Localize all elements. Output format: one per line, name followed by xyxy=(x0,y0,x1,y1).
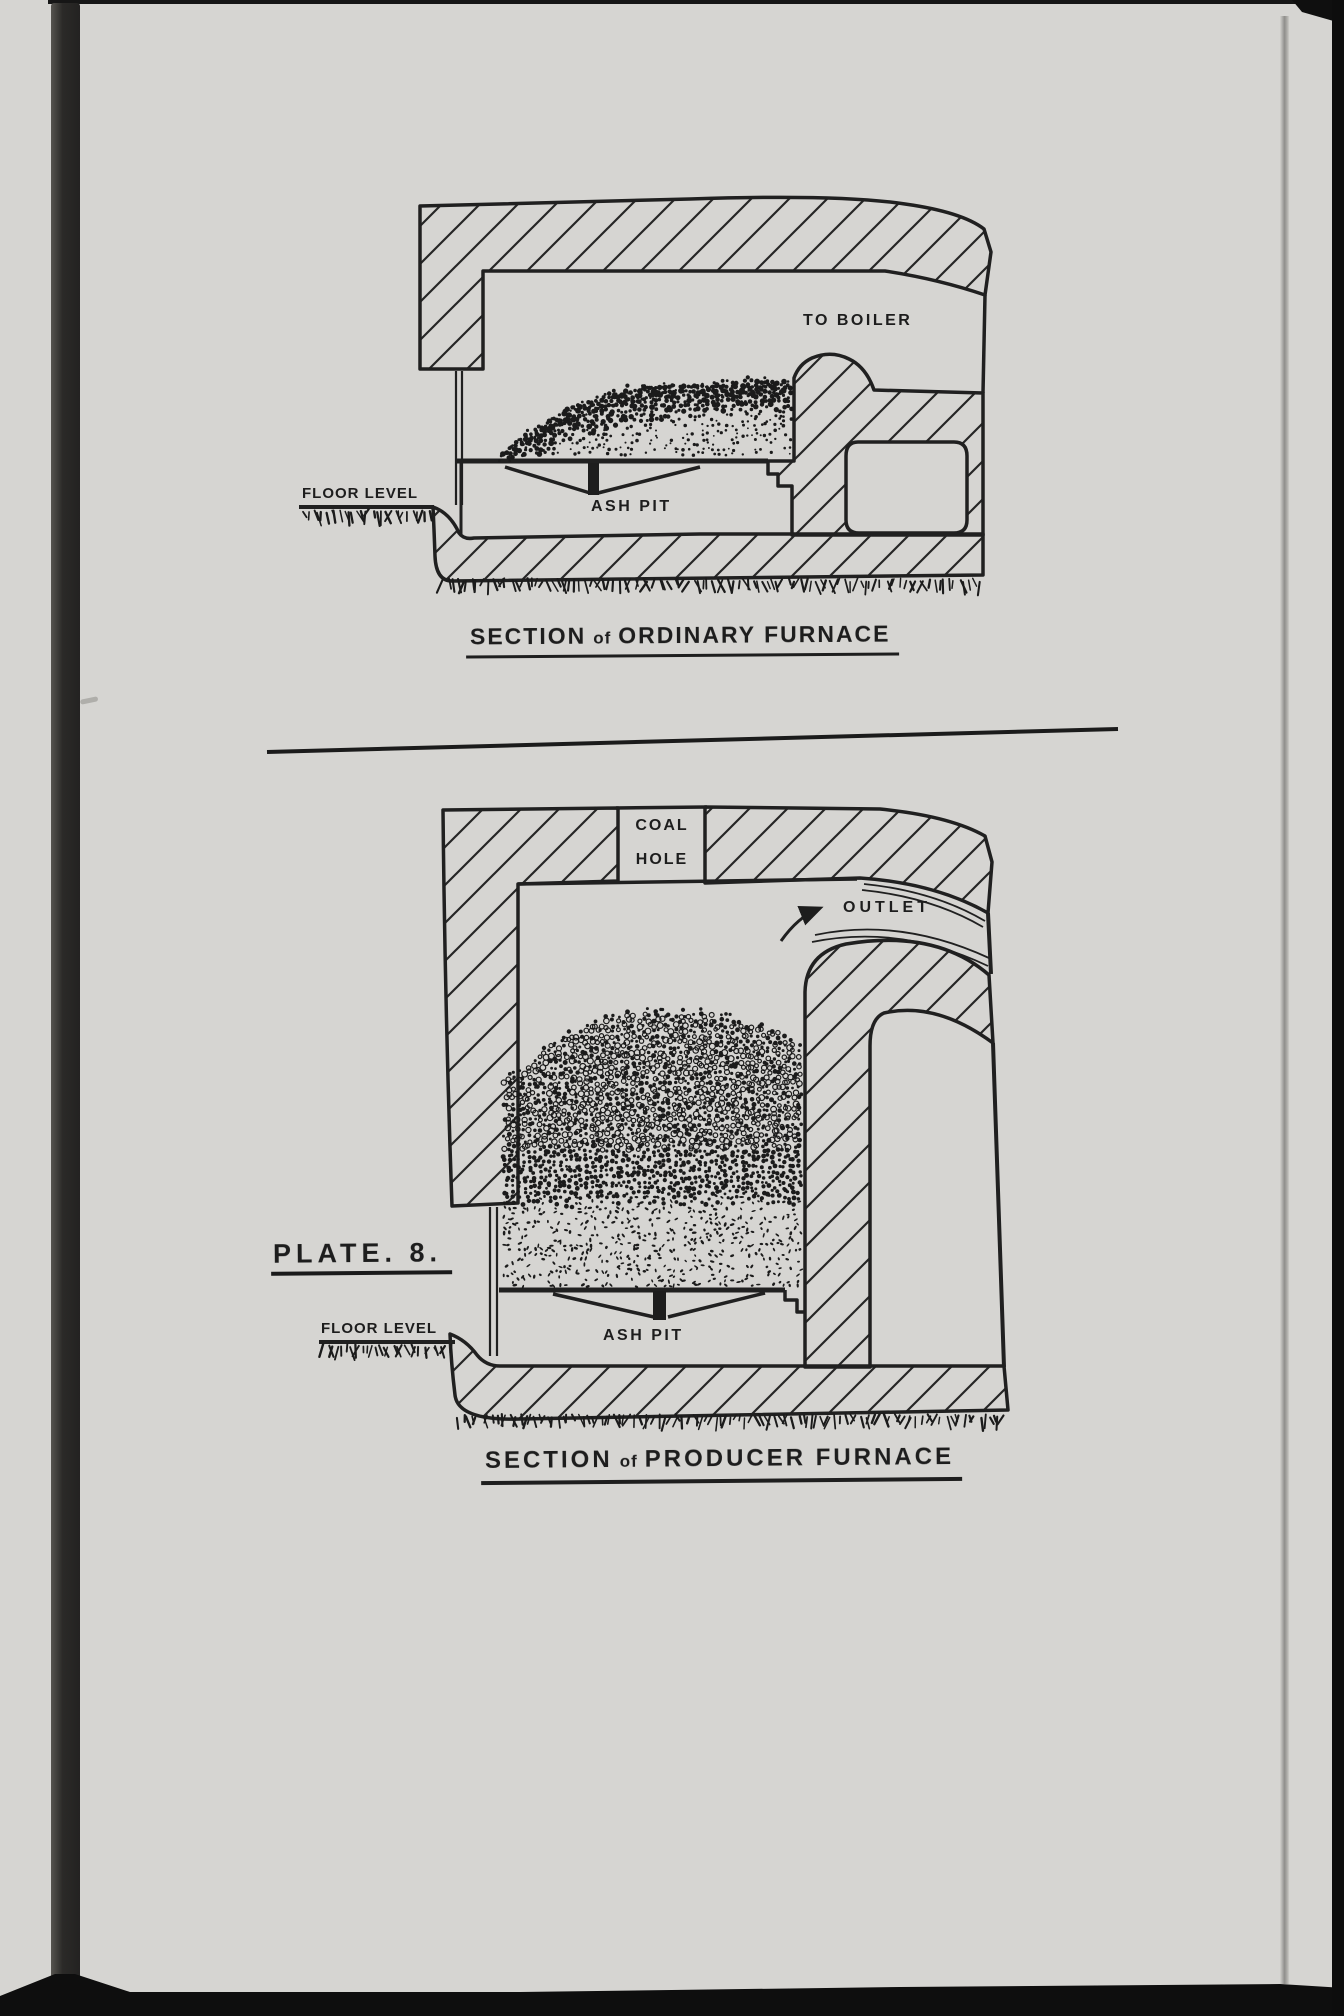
pf-hopper-post xyxy=(653,1291,666,1320)
coal-hole-label-line2: HOLE xyxy=(618,851,706,869)
ash-pit-label-top: ASH PIT xyxy=(591,498,672,516)
of-fuel-bed-stipple xyxy=(498,375,794,462)
page-stack-edge xyxy=(1280,16,1290,1984)
title-rest: ORDINARY FURNACE xyxy=(618,621,890,649)
scanned-book-page: TO BOILER FLOOR LEVEL ASH PIT SECTIONofO… xyxy=(0,0,1344,2016)
outlet-label: OUTLET xyxy=(843,899,931,917)
of-roof-and-left-block xyxy=(420,197,991,369)
pf-roof-right xyxy=(705,807,992,913)
ordinary-furnace-title: SECTIONofORDINARY FURNACE xyxy=(466,620,899,658)
plate-number-label: PLATE. 8. xyxy=(271,1237,452,1276)
title-lead: SECTION xyxy=(485,1446,613,1474)
scan-borders xyxy=(0,0,1344,2016)
pf-inner-wall xyxy=(805,940,993,1367)
coal-hole-label-line1: COAL xyxy=(618,817,706,835)
scan-right-border xyxy=(1332,0,1344,2016)
pf-fuel-bed-stipple xyxy=(501,1007,804,1289)
pf-grate-step xyxy=(785,1290,806,1312)
title-connector: of xyxy=(593,628,611,647)
producer-furnace-title: SECTIONofPRODUCER FURNACE xyxy=(481,1443,962,1485)
outlet-arrow xyxy=(781,909,818,941)
book-gutter-bar xyxy=(51,3,80,1985)
to-boiler-label: TO BOILER xyxy=(803,312,912,330)
pf-damper-rod xyxy=(490,1207,497,1356)
of-right-cut-edge xyxy=(983,295,985,393)
margin-smudge xyxy=(80,696,99,705)
floor-level-label-bottom: FLOOR LEVEL xyxy=(321,1320,437,1337)
pf-base-band xyxy=(450,1334,1008,1419)
section-divider-rule xyxy=(267,729,1118,752)
title-lead: SECTION xyxy=(470,623,586,650)
ash-pit-label-bottom: ASH PIT xyxy=(603,1327,684,1345)
of-hopper-post xyxy=(588,463,599,495)
title-connector: of xyxy=(620,1452,638,1471)
pf-coalhole-top-line xyxy=(616,807,707,808)
floor-level-label-top: FLOOR LEVEL xyxy=(302,485,418,502)
plate-drawing xyxy=(0,0,1344,2016)
of-hopper-plates xyxy=(505,467,700,493)
scan-bottom-border xyxy=(0,1974,1344,2016)
of-right-flue-mass xyxy=(768,354,983,535)
of-base-band xyxy=(433,507,983,581)
of-damper-rod xyxy=(456,371,462,505)
scan-top-border xyxy=(48,0,1296,4)
title-rest: PRODUCER FURNACE xyxy=(645,1443,955,1473)
